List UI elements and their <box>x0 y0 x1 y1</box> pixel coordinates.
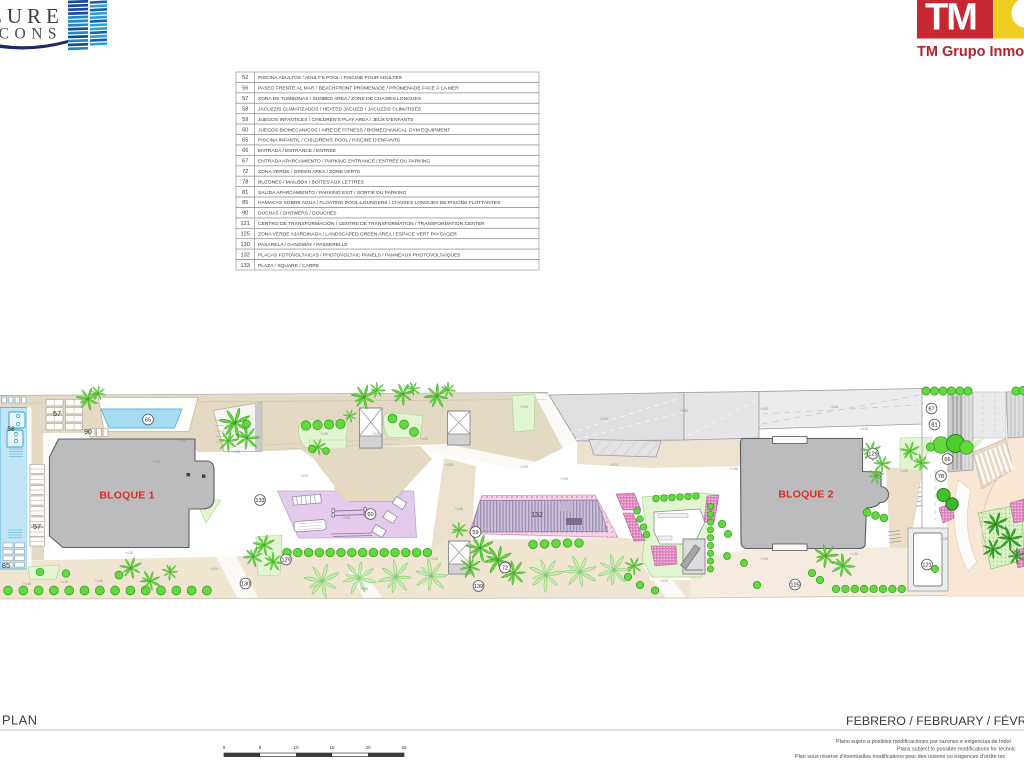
svg-text:+4.30: +4.30 <box>455 507 463 511</box>
svg-text:+4.30: +4.30 <box>300 474 308 478</box>
svg-text:65: 65 <box>145 418 151 424</box>
svg-text:60: 60 <box>367 512 373 518</box>
svg-text:ENTRADA / ENTRANCE / ENTRÉE: ENTRADA / ENTRANCE / ENTRÉE <box>258 147 337 154</box>
svg-text:+4.30: +4.30 <box>560 477 568 481</box>
svg-text:ICONS: ICONS <box>0 26 62 43</box>
svg-text:+4.30: +4.30 <box>95 579 103 583</box>
svg-text:90: 90 <box>84 429 92 436</box>
svg-text:JUEGOS BIOMECANICOS / AIRE DE: JUEGOS BIOMECANICOS / AIRE DE FITNESS / … <box>258 127 450 133</box>
svg-text:132: 132 <box>531 512 543 519</box>
svg-text:72: 72 <box>502 566 508 572</box>
svg-text:ZURE: ZURE <box>0 4 64 28</box>
svg-text:90: 90 <box>242 211 248 217</box>
svg-text:SALIDA APARCAMIENTO / PARKING: SALIDA APARCAMIENTO / PARKING EXIT / SOR… <box>258 190 407 196</box>
svg-text:81: 81 <box>931 423 937 429</box>
svg-text:78: 78 <box>938 474 944 480</box>
svg-text:+4.30: +4.30 <box>210 567 218 571</box>
svg-text:72: 72 <box>242 169 248 175</box>
svg-text:132: 132 <box>241 252 250 258</box>
svg-text:125: 125 <box>790 583 799 589</box>
svg-text:DUCHAS / SHOWERS / DOUCHES: DUCHAS / SHOWERS / DOUCHES <box>258 211 337 217</box>
svg-text:85: 85 <box>242 200 248 206</box>
svg-text:PISCINA ADULTOS / ADULT'S POOL: PISCINA ADULTOS / ADULT'S POOL / PISCINE… <box>258 75 403 81</box>
svg-text:66: 66 <box>242 148 248 154</box>
svg-text:+4.30: +4.30 <box>232 450 240 454</box>
svg-text:57: 57 <box>53 409 61 418</box>
svg-text:+4.30: +4.30 <box>680 409 688 413</box>
svg-text:+4.30: +4.30 <box>600 417 608 421</box>
svg-text:BUZONES / MAILBOX / BOÎTES AU: BUZONES / MAILBOX / BOÎTES AUX LETTRES <box>258 178 365 185</box>
svg-text:+4.30: +4.30 <box>342 516 350 520</box>
svg-text:FEBRERO / FEBRUARY / FÉVRIER: FEBRERO / FEBRUARY / FÉVRIER <box>846 713 1024 728</box>
svg-text:25: 25 <box>401 745 407 750</box>
svg-text:85: 85 <box>2 561 10 570</box>
svg-text:ZONA VERDE AJARDINADA / LANDSC: ZONA VERDE AJARDINADA / LANDSCAPED GREEN… <box>258 232 457 238</box>
svg-text:+4.30: +4.30 <box>760 407 768 411</box>
svg-text:133: 133 <box>255 498 264 504</box>
svg-text:+4.30: +4.30 <box>830 405 838 409</box>
svg-text:JACUZZIS CLIMATIZADOS / HEATE: JACUZZIS CLIMATIZADOS / HEATED JACUZZI /… <box>258 106 422 113</box>
svg-text:81: 81 <box>242 190 248 196</box>
svg-text:133: 133 <box>241 263 250 269</box>
svg-text:PLAN: PLAN <box>2 713 37 728</box>
svg-text:Plano sujeto a posibles modifi: Plano sujeto a posibles modificaciones p… <box>836 739 1011 745</box>
svg-text:130: 130 <box>241 582 250 588</box>
svg-text:CENTRO DE TRANSFORMACIÓN / CEN: CENTRO DE TRANSFORMACIÓN / CENTRE DE TRA… <box>258 220 485 227</box>
svg-text:+4.30: +4.30 <box>372 432 380 436</box>
svg-text:ENTRADA APARCAMIENTO / PARKING: ENTRADA APARCAMIENTO / PARKING ENTRANCE … <box>258 158 430 165</box>
svg-text:58: 58 <box>242 107 248 113</box>
svg-text:+4.30: +4.30 <box>430 557 438 561</box>
svg-text:65: 65 <box>242 138 248 144</box>
svg-text:+4.30: +4.30 <box>520 405 528 409</box>
svg-text:67: 67 <box>928 407 934 413</box>
svg-text:10: 10 <box>293 745 299 750</box>
svg-text:BLOQUE 2: BLOQUE 2 <box>778 489 833 501</box>
svg-text:BLOQUE 1: BLOQUE 1 <box>99 490 154 502</box>
svg-text:5: 5 <box>259 745 262 750</box>
svg-text:+4.30: +4.30 <box>360 587 368 591</box>
svg-text:+4.30: +4.30 <box>23 582 31 586</box>
svg-text:139: 139 <box>474 584 483 590</box>
svg-text:59: 59 <box>472 530 478 536</box>
svg-text:58: 58 <box>7 426 15 433</box>
svg-text:57: 57 <box>33 522 41 531</box>
svg-text:PASEO FRENTE AL MAR / BEACHFRO: PASEO FRENTE AL MAR / BEACHFRONT PROMENA… <box>258 85 459 92</box>
svg-text:+4.30: +4.30 <box>730 467 738 471</box>
svg-text:57: 57 <box>242 96 248 102</box>
svg-text:130: 130 <box>241 242 250 248</box>
svg-text:PASARELA / GANGWAY / PASSERELL: PASARELA / GANGWAY / PASSERELLE <box>258 242 348 248</box>
svg-text:0: 0 <box>223 745 226 750</box>
svg-text:+4.30: +4.30 <box>420 437 428 441</box>
svg-text:66: 66 <box>944 457 950 463</box>
svg-text:78: 78 <box>242 179 248 185</box>
svg-text:125: 125 <box>241 232 250 238</box>
svg-text:52: 52 <box>242 75 248 81</box>
svg-text:+4.30: +4.30 <box>940 537 948 541</box>
svg-text:TM: TM <box>925 0 976 39</box>
svg-text:+4.30: +4.30 <box>60 580 68 584</box>
svg-text:20: 20 <box>365 745 371 750</box>
svg-text:+4.30: +4.30 <box>850 552 858 556</box>
svg-text:15: 15 <box>329 745 335 750</box>
svg-text:ZONA VERDE / GREEN AREA / ZONE: ZONA VERDE / GREEN AREA / ZONE VERTE <box>258 169 361 175</box>
svg-text:60: 60 <box>242 127 248 133</box>
svg-text:+4.30: +4.30 <box>610 463 618 467</box>
svg-text:Plans subject to possible modi: Plans subject to possible modifications … <box>897 747 1016 753</box>
svg-text:+4.30: +4.30 <box>860 427 868 431</box>
svg-text:+4.30: +4.30 <box>520 465 528 469</box>
svg-text:+4.30: +4.30 <box>660 579 668 583</box>
svg-text:+4.30: +4.30 <box>152 460 160 464</box>
svg-text:PLAZA / SQUARE / CARRE: PLAZA / SQUARE / CARRE <box>258 263 320 269</box>
svg-text:129: 129 <box>281 558 290 564</box>
svg-text:129: 129 <box>868 452 877 458</box>
svg-text:56: 56 <box>242 86 248 92</box>
svg-text:67: 67 <box>242 159 248 165</box>
svg-text:+4.30: +4.30 <box>178 439 186 443</box>
svg-text:Plan sous réserve d'éventuelle: Plan sous réserve d'éventuelles modifica… <box>795 754 1006 760</box>
svg-text:ZONA DE TUMBONAS / SUNBED ARE: ZONA DE TUMBONAS / SUNBED AREA / ZONE DE… <box>258 96 422 102</box>
svg-text:+4.30: +4.30 <box>900 469 908 473</box>
svg-text:59: 59 <box>242 117 248 123</box>
svg-text:121: 121 <box>922 563 931 569</box>
svg-text:PLACAS FOTOVOLTAICAS / PHOTOVO: PLACAS FOTOVOLTAICAS / PHOTOVOLTAIC PANE… <box>258 251 461 258</box>
svg-text:HAMACAS SOBRE AGUA / FLOATING: HAMACAS SOBRE AGUA / FLOATING POOL-LOUNG… <box>258 200 501 206</box>
svg-text:JUEGOS INFANTILES / CHILDREN': JUEGOS INFANTILES / CHILDREN'S PLAY AREA… <box>258 117 414 123</box>
svg-text:PISCINA INFANTIL / CHILDREN'S: PISCINA INFANTIL / CHILDREN'S POOL / PIS… <box>258 138 401 144</box>
svg-text:121: 121 <box>241 221 250 227</box>
svg-text:+4.30: +4.30 <box>320 432 328 436</box>
svg-text:+4.30: +4.30 <box>445 463 453 467</box>
svg-text:TM Grupo Inmo: TM Grupo Inmo <box>917 44 1024 60</box>
svg-text:+4.30: +4.30 <box>760 557 768 561</box>
svg-text:+4.30: +4.30 <box>125 551 133 555</box>
